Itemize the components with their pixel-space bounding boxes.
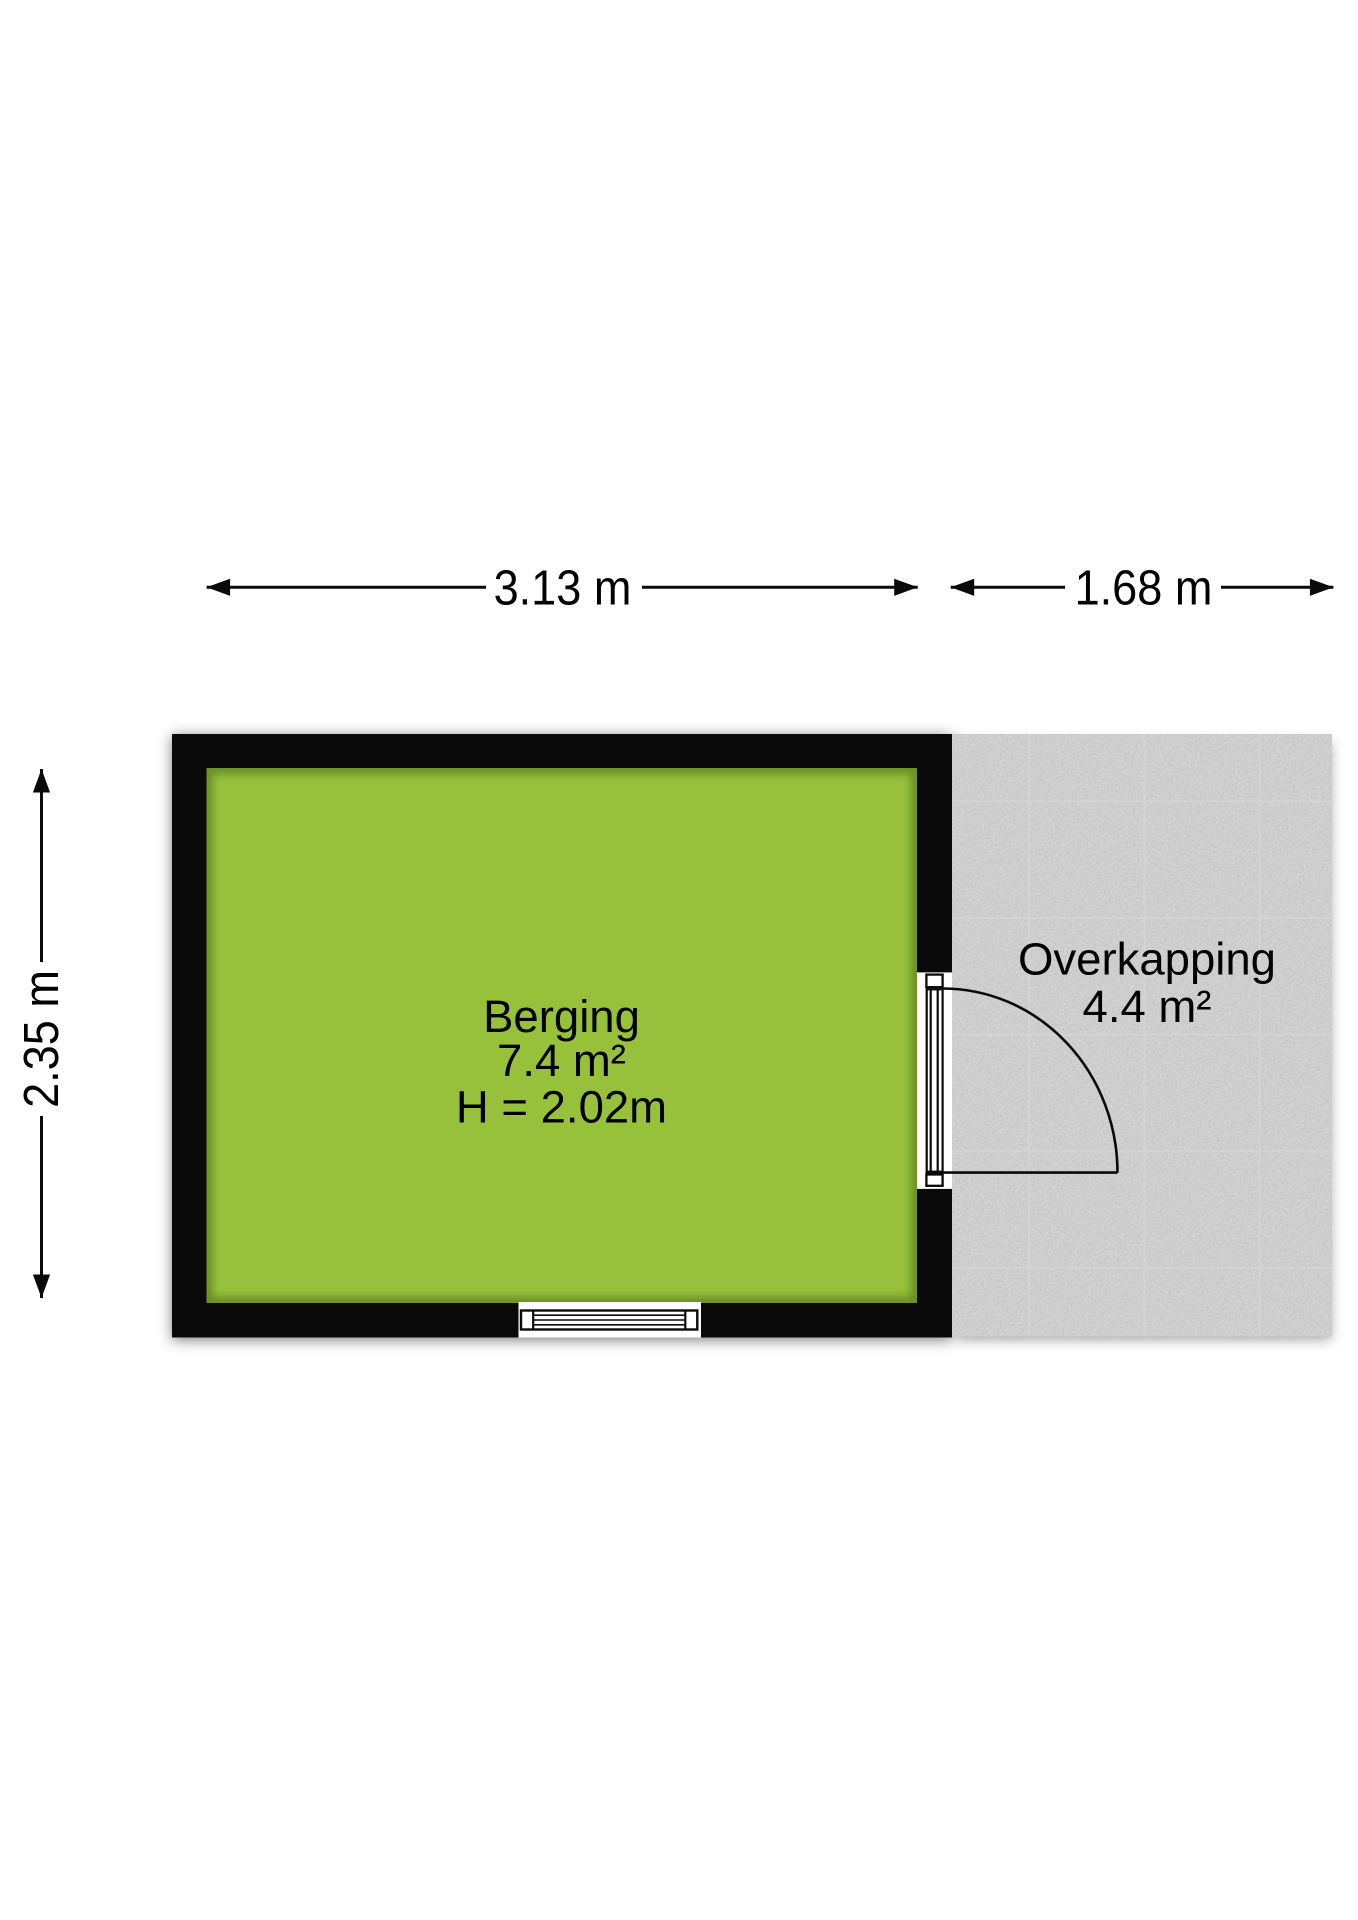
svg-text:Overkapping: Overkapping bbox=[1018, 933, 1276, 984]
svg-text:H = 2.02m: H = 2.02m bbox=[456, 1082, 667, 1133]
svg-text:4.4 m²: 4.4 m² bbox=[1083, 981, 1212, 1032]
svg-text:2.35 m: 2.35 m bbox=[13, 970, 68, 1108]
svg-text:7.4 m²: 7.4 m² bbox=[497, 1035, 626, 1086]
svg-text:3.13 m: 3.13 m bbox=[494, 560, 632, 615]
svg-text:1.68 m: 1.68 m bbox=[1075, 560, 1213, 615]
